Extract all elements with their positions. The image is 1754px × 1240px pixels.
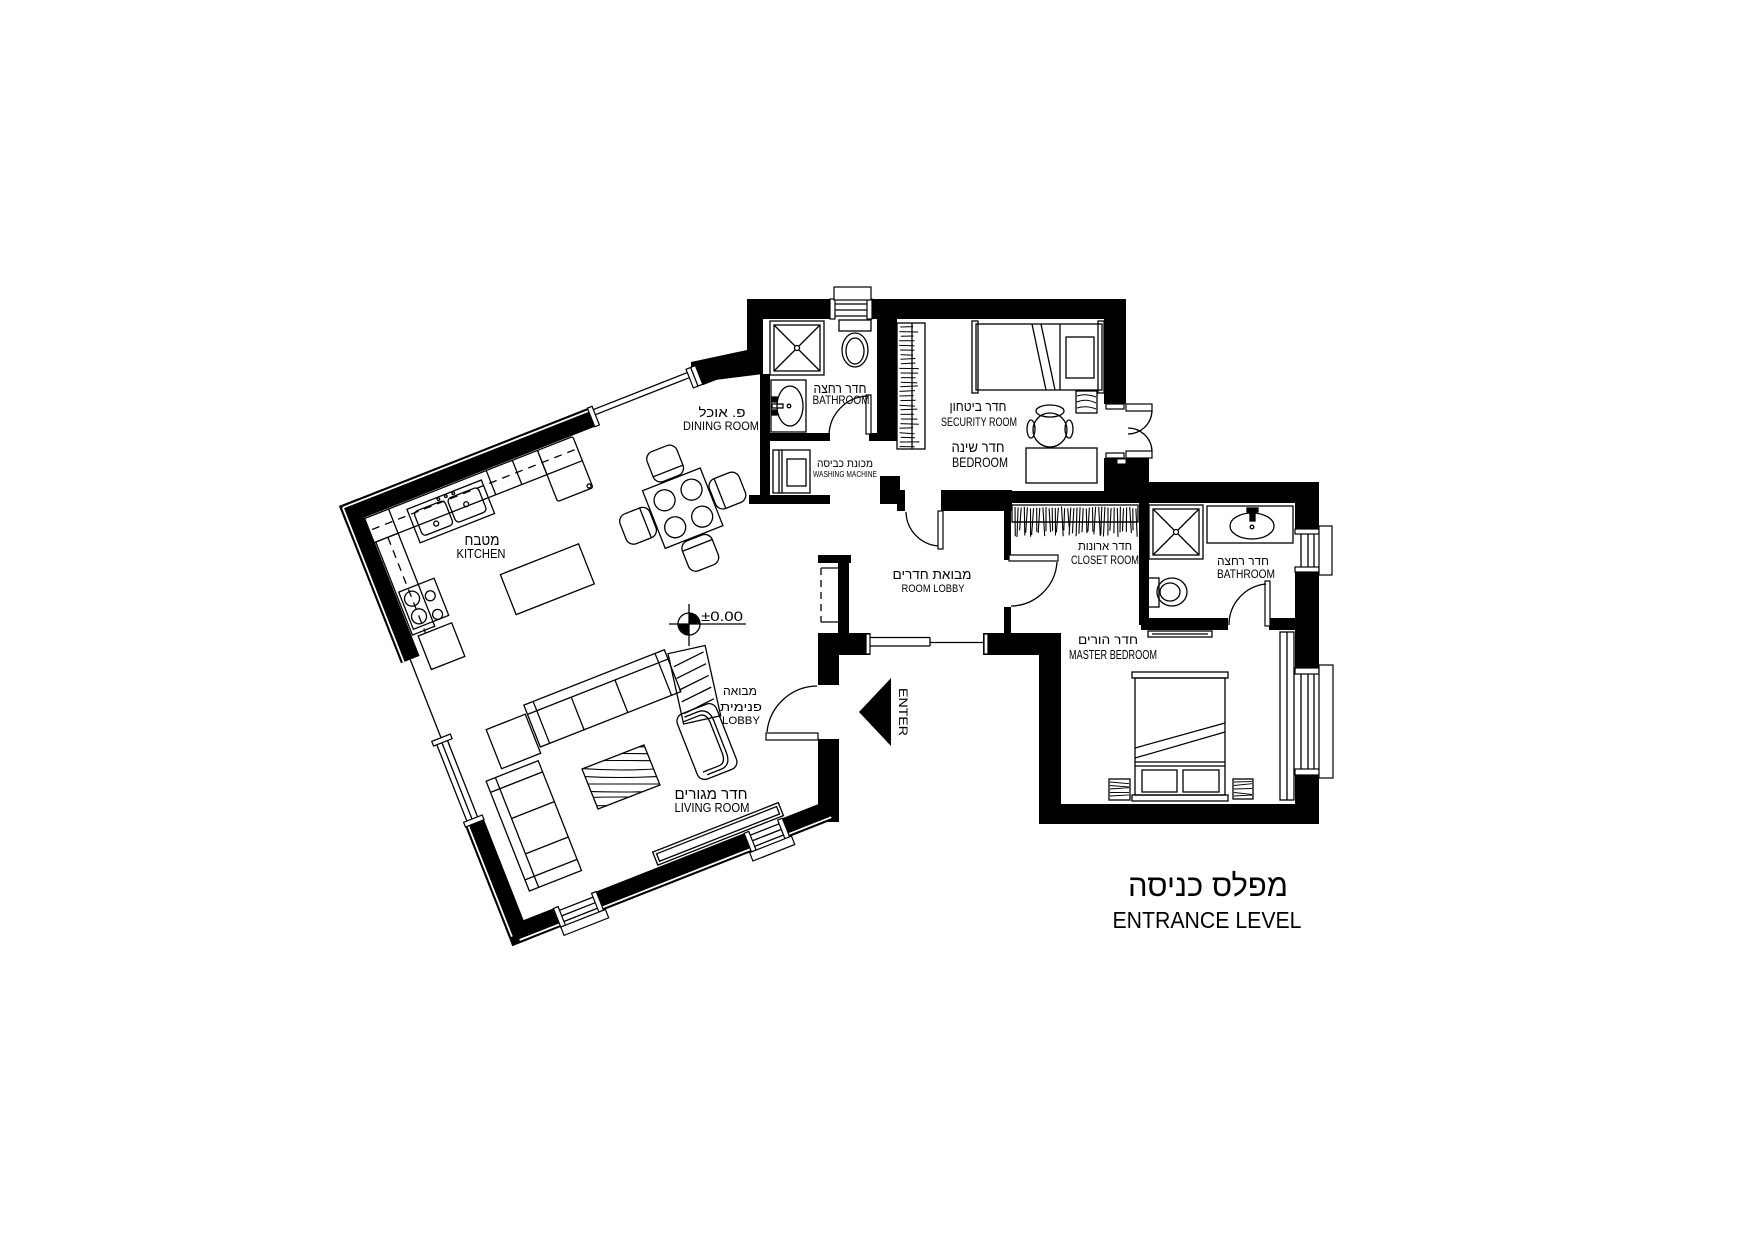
svg-text:WASHING MACHINE: WASHING MACHINE xyxy=(813,470,877,479)
svg-text:BEDROOM: BEDROOM xyxy=(952,454,1008,470)
svg-text:חדר רחצה: חדר רחצה xyxy=(1217,554,1269,568)
svg-text:חדר הורים: חדר הורים xyxy=(1078,633,1138,647)
svg-text:מבואת חדרים: מבואת חדרים xyxy=(893,567,972,582)
svg-text:DINING ROOM: DINING ROOM xyxy=(683,419,759,433)
svg-text:ENTER: ENTER xyxy=(896,688,910,736)
svg-text:מפלס כניסה: מפלס כניסה xyxy=(1128,868,1288,903)
svg-text:KITCHEN: KITCHEN xyxy=(457,546,506,561)
svg-text:BATHROOM: BATHROOM xyxy=(813,393,870,407)
svg-text:BATHROOM: BATHROOM xyxy=(1217,567,1275,581)
svg-text:CLOSET ROOM: CLOSET ROOM xyxy=(1071,555,1139,567)
svg-text:SECURITY ROOM: SECURITY ROOM xyxy=(941,415,1017,429)
svg-text:ROOM LOBBY: ROOM LOBBY xyxy=(902,583,966,595)
svg-text:LIVING ROOM: LIVING ROOM xyxy=(675,800,750,815)
svg-text:פנימית: פנימית xyxy=(720,700,762,714)
svg-text:±0.00: ±0.00 xyxy=(701,608,743,624)
svg-text:פ. אוכל: פ. אוכל xyxy=(699,405,746,420)
svg-text:חדר ארונות: חדר ארונות xyxy=(1078,539,1132,553)
svg-text:MASTER BEDROOM: MASTER BEDROOM xyxy=(1069,648,1157,662)
svg-text:מבואה: מבואה xyxy=(723,684,757,698)
svg-text:חדר ביטחון: חדר ביטחון xyxy=(950,399,1007,414)
svg-text:חדר שינה: חדר שינה xyxy=(952,439,1005,455)
svg-text:ENTRANCE LEVEL: ENTRANCE LEVEL xyxy=(1113,907,1302,933)
svg-text:מכונת כביסה: מכונת כביסה xyxy=(817,458,873,470)
svg-text:LOBBY: LOBBY xyxy=(722,715,761,727)
